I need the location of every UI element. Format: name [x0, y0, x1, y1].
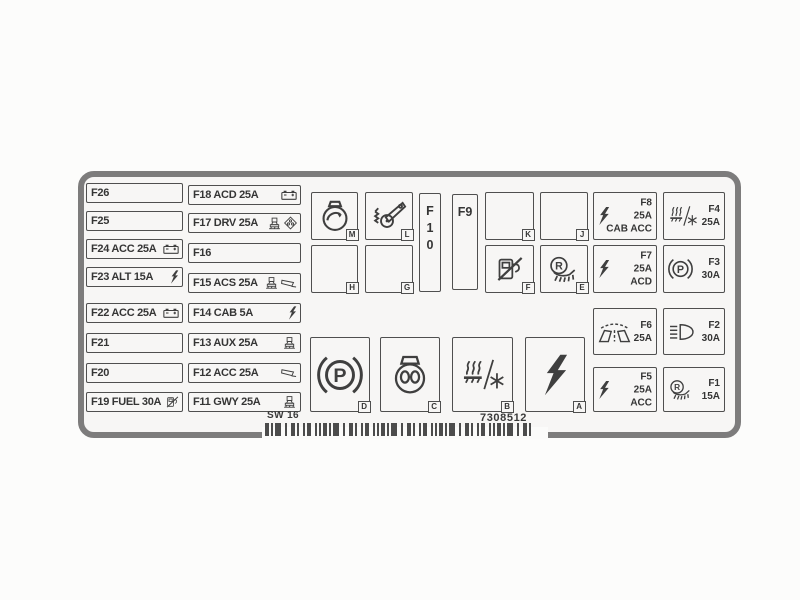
barcode-bar — [365, 423, 369, 436]
fuse-row-icons — [282, 396, 297, 408]
fuse-row-icons — [288, 306, 297, 320]
barcode-bar — [497, 423, 501, 436]
fuse-info-line: 30A — [702, 332, 720, 345]
fuse-info-line: F2 — [702, 319, 720, 332]
fuse-label: F24 ACC 25A — [91, 243, 156, 255]
barcode-bar — [465, 423, 469, 436]
fuse-row-f17: F17 DRV 25A — [188, 213, 301, 233]
fuse-row-icons — [163, 244, 179, 254]
barcode-bar — [407, 423, 411, 436]
heater-ac-icon — [461, 358, 505, 391]
scanned-page: SW 16 7308512 F26F25F24 ACC 25AF23 ALT 1… — [0, 0, 800, 600]
horn-icon — [390, 354, 430, 396]
fuse-info-f3: F330A — [663, 245, 725, 293]
fuse-label: F11 GWY 25A — [193, 396, 260, 408]
fuse-info-icon — [598, 260, 610, 279]
fuse-label: F — [426, 203, 434, 220]
relay-slot-c: C — [380, 337, 440, 412]
barcode-bar — [265, 423, 269, 436]
fuse-label: F20 — [91, 367, 109, 379]
relay-slot-g: G — [365, 245, 413, 293]
fuse-info-text: F625A — [634, 319, 652, 345]
relay-slot-l: L — [365, 192, 413, 240]
fuse-panel-label: SW 16 7308512 F26F25F24 ACC 25AF23 ALT 1… — [78, 171, 741, 438]
barcode-bar — [481, 423, 485, 436]
lightning-bolt-icon — [542, 350, 569, 400]
fuse-row-f24: F24 ACC 25A — [86, 239, 183, 259]
fuse-label: F21 — [91, 337, 109, 349]
slot-letter-tag: F — [522, 282, 535, 294]
barcode-bar — [477, 423, 479, 436]
mirror-icon — [281, 279, 297, 288]
lightning-bolt-icon — [598, 260, 610, 279]
fuse-label: F17 DRV 25A — [193, 217, 258, 229]
fuse-info-line: CAB ACC — [606, 223, 652, 236]
barcode-bar — [315, 423, 317, 436]
barcode-bar — [471, 423, 473, 436]
headlight-icon — [668, 323, 695, 340]
fuse-info-icon — [598, 321, 631, 342]
slot-letter-tag: H — [346, 282, 359, 294]
fuse-row-f14: F14 CAB 5A — [188, 303, 301, 323]
barcode-bar — [329, 423, 331, 436]
barcode-bar — [523, 423, 527, 436]
fuse-row-icons — [282, 337, 297, 349]
fuse-info-line: F1 — [702, 377, 720, 390]
barcode-bar — [435, 423, 437, 436]
barcode-bar — [493, 423, 495, 436]
fuse-info-line: F3 — [702, 256, 720, 269]
relay-slot-a: A — [525, 337, 585, 412]
fuse-info-icon — [598, 380, 610, 399]
fuse-row-icons — [163, 308, 179, 318]
fuse-info-line: F7 — [630, 250, 652, 263]
fuse-info-text: F115A — [702, 377, 720, 403]
relay-slot-h: H — [311, 245, 358, 293]
slot-letter-tag: K — [522, 229, 535, 241]
fuse-info-icon — [668, 379, 694, 400]
park-brake-icon — [668, 257, 693, 282]
barcode-bar — [391, 423, 397, 436]
barcode-bar — [529, 423, 531, 436]
lightning-bolt-icon — [288, 306, 297, 320]
slot-letter-tag: C — [428, 401, 441, 413]
fuse-info-text: F230A — [702, 319, 720, 345]
fuse-label: 1 — [427, 220, 434, 237]
barcode-bar — [401, 423, 403, 436]
lightning-bolt-icon — [170, 270, 179, 284]
barcode-bar — [507, 423, 513, 436]
fuse-label: F22 ACC 25A — [91, 307, 156, 319]
barcode — [265, 423, 537, 436]
fuse-info-line: 25A — [630, 263, 652, 276]
fuse-row-icons — [267, 217, 297, 230]
panel-code-text: SW 16 — [267, 410, 299, 421]
fuse-info-icon — [668, 323, 695, 340]
relay-slot-d: D — [310, 337, 370, 412]
battery-icon — [163, 244, 179, 254]
fuse-row-icons — [281, 190, 297, 200]
relay-slot-e: E — [540, 245, 588, 293]
fuse-info-line: F6 — [634, 319, 652, 332]
fuse-info-f5: F525AACC — [593, 367, 657, 412]
seat-pedestal-icon — [282, 396, 297, 408]
fuse-label: F12 ACC 25A — [193, 367, 258, 379]
barcode-bar — [319, 423, 321, 436]
barcode-bar — [387, 423, 389, 436]
fuse-info-f1: F115A — [663, 367, 725, 412]
barcode-bar — [503, 423, 505, 436]
fuse-row-f21: F21 — [86, 333, 183, 353]
serial-number-text: 7308512 — [480, 412, 527, 424]
relay-slot-j: J — [540, 192, 588, 240]
barcode-bar — [275, 423, 281, 436]
fuse-label: 0 — [427, 237, 434, 254]
slot-letter-tag: M — [346, 229, 359, 241]
battery-icon — [163, 308, 179, 318]
diff-lock-icon — [284, 217, 297, 230]
fuse-row-icons — [170, 270, 179, 284]
fuse-row-f20: F20 — [86, 363, 183, 383]
fuse-label: F16 — [193, 247, 211, 259]
fuse-info-text: F725AACD — [630, 250, 652, 289]
fuse-row-f26: F26 — [86, 183, 183, 203]
fuse-row-f13: F13 AUX 25A — [188, 333, 301, 353]
barcode-bar — [439, 423, 443, 436]
fuse-f9: F9 — [452, 194, 478, 290]
battery-icon — [281, 190, 297, 200]
fuse-label: F9 — [458, 204, 473, 221]
fuse-row-f19: F19 FUEL 30A — [86, 392, 183, 412]
barcode-bar — [377, 423, 379, 436]
barcode-bar — [307, 423, 311, 436]
heater-ac-icon — [668, 205, 698, 227]
fuse-info-f2: F230A — [663, 308, 725, 355]
slot-letter-tag: D — [358, 401, 371, 413]
barcode-bar — [343, 423, 345, 436]
barcode-bar — [361, 423, 363, 436]
barcode-bar — [323, 423, 327, 436]
barcode-bar — [423, 423, 427, 436]
barcode-bar — [449, 423, 455, 436]
fuse-label: F19 FUEL 30A — [91, 396, 161, 408]
barcode-bar — [419, 423, 421, 436]
slot-letter-tag: B — [501, 401, 514, 413]
fuse-row-f12: F12 ACC 25A — [188, 363, 301, 383]
barcode-bar — [431, 423, 433, 436]
fuse-info-text: F825ACAB ACC — [606, 197, 652, 236]
barcode-bar — [517, 423, 519, 436]
fuse-info-line: ACD — [630, 276, 652, 289]
seat-pedestal-icon — [282, 337, 297, 349]
barcode-bar — [445, 423, 447, 436]
park-brake-icon — [317, 352, 363, 398]
fuse-info-line: ACC — [630, 396, 652, 409]
fuse-label: F15 ACS 25A — [193, 277, 258, 289]
fuse-info-line: 25A — [634, 332, 652, 345]
barcode-bar — [333, 423, 339, 436]
fuse-label: F26 — [91, 187, 109, 199]
fuse-row-f18: F18 ACD 25A — [188, 185, 301, 205]
fuse-row-f16: F16 — [188, 243, 301, 263]
barcode-bar — [291, 423, 295, 436]
fuse-info-f4: F425A — [663, 192, 725, 240]
relay-slot-b: B — [452, 337, 513, 412]
fuse-info-line: 25A — [702, 216, 720, 229]
fuel-pump-slash-icon — [496, 255, 524, 283]
slot-letter-tag: G — [401, 282, 414, 294]
fuse-info-line: 25A — [630, 383, 652, 396]
alternator-icon — [319, 200, 351, 232]
fuse-row-icons — [166, 396, 179, 409]
barcode-bar — [271, 423, 273, 436]
lightning-bolt-icon — [598, 380, 610, 399]
slot-letter-tag: J — [576, 229, 589, 241]
work-lamp-r-icon — [668, 379, 694, 400]
fuse-row-icons — [264, 277, 297, 289]
barcode-bar — [459, 423, 461, 436]
fuse-row-f11: F11 GWY 25A — [188, 392, 301, 412]
fuse-info-icon — [668, 257, 693, 282]
fuse-row-icons — [281, 369, 297, 378]
seat-pedestal-icon — [264, 277, 279, 289]
fuse-info-line: 30A — [702, 269, 720, 282]
relay-slot-f: F — [485, 245, 534, 293]
fuse-info-line: F8 — [606, 197, 652, 210]
barcode-bar — [285, 423, 287, 436]
fuse-info-text: F330A — [702, 256, 720, 282]
fuse-label: F23 ALT 15A — [91, 271, 153, 283]
barcode-bar — [349, 423, 353, 436]
fuse-info-text: F425A — [702, 203, 720, 229]
fuse-label: F14 CAB 5A — [193, 307, 253, 319]
fuse-info-text: F525AACC — [630, 370, 652, 409]
fuel-pump-slash-icon — [166, 396, 179, 409]
fuse-label: F13 AUX 25A — [193, 337, 258, 349]
relay-slot-m: M — [311, 192, 358, 240]
barcode-bar — [381, 423, 385, 436]
fuse-row-f23: F23 ALT 15A — [86, 267, 183, 287]
slot-letter-tag: L — [401, 229, 414, 241]
barcode-bar — [297, 423, 299, 436]
fuse-info-f8: F825ACAB ACC — [593, 192, 657, 240]
fuse-info-line: 15A — [702, 390, 720, 403]
barcode-bar — [413, 423, 415, 436]
pedal-lever-icon — [372, 201, 407, 231]
barcode-bar — [489, 423, 491, 436]
barcode-bar — [373, 423, 375, 436]
fuse-info-line: 25A — [606, 210, 652, 223]
relay-slot-k: K — [485, 192, 534, 240]
slot-letter-tag: A — [573, 401, 586, 413]
fuse-label: F18 ACD 25A — [193, 189, 258, 201]
fuse-row-f22: F22 ACC 25A — [86, 303, 183, 323]
fuse-info-f6: F625A — [593, 308, 657, 355]
wiper-icon — [598, 321, 631, 342]
fuse-row-f25: F25 — [86, 211, 183, 231]
fuse-info-line: F5 — [630, 370, 652, 383]
barcode-bar — [355, 423, 357, 436]
fuse-info-line: F4 — [702, 203, 720, 216]
fuse-info-icon — [668, 205, 698, 227]
work-lamp-r-icon — [548, 256, 580, 283]
fuse-f10: F10 — [419, 193, 441, 292]
fuse-row-f15: F15 ACS 25A — [188, 273, 301, 293]
barcode-bar — [303, 423, 305, 436]
mirror-icon — [281, 369, 297, 378]
seat-pedestal-icon — [267, 217, 282, 229]
slot-letter-tag: E — [576, 282, 589, 294]
fuse-info-f7: F725AACD — [593, 245, 657, 293]
fuse-label: F25 — [91, 215, 109, 227]
